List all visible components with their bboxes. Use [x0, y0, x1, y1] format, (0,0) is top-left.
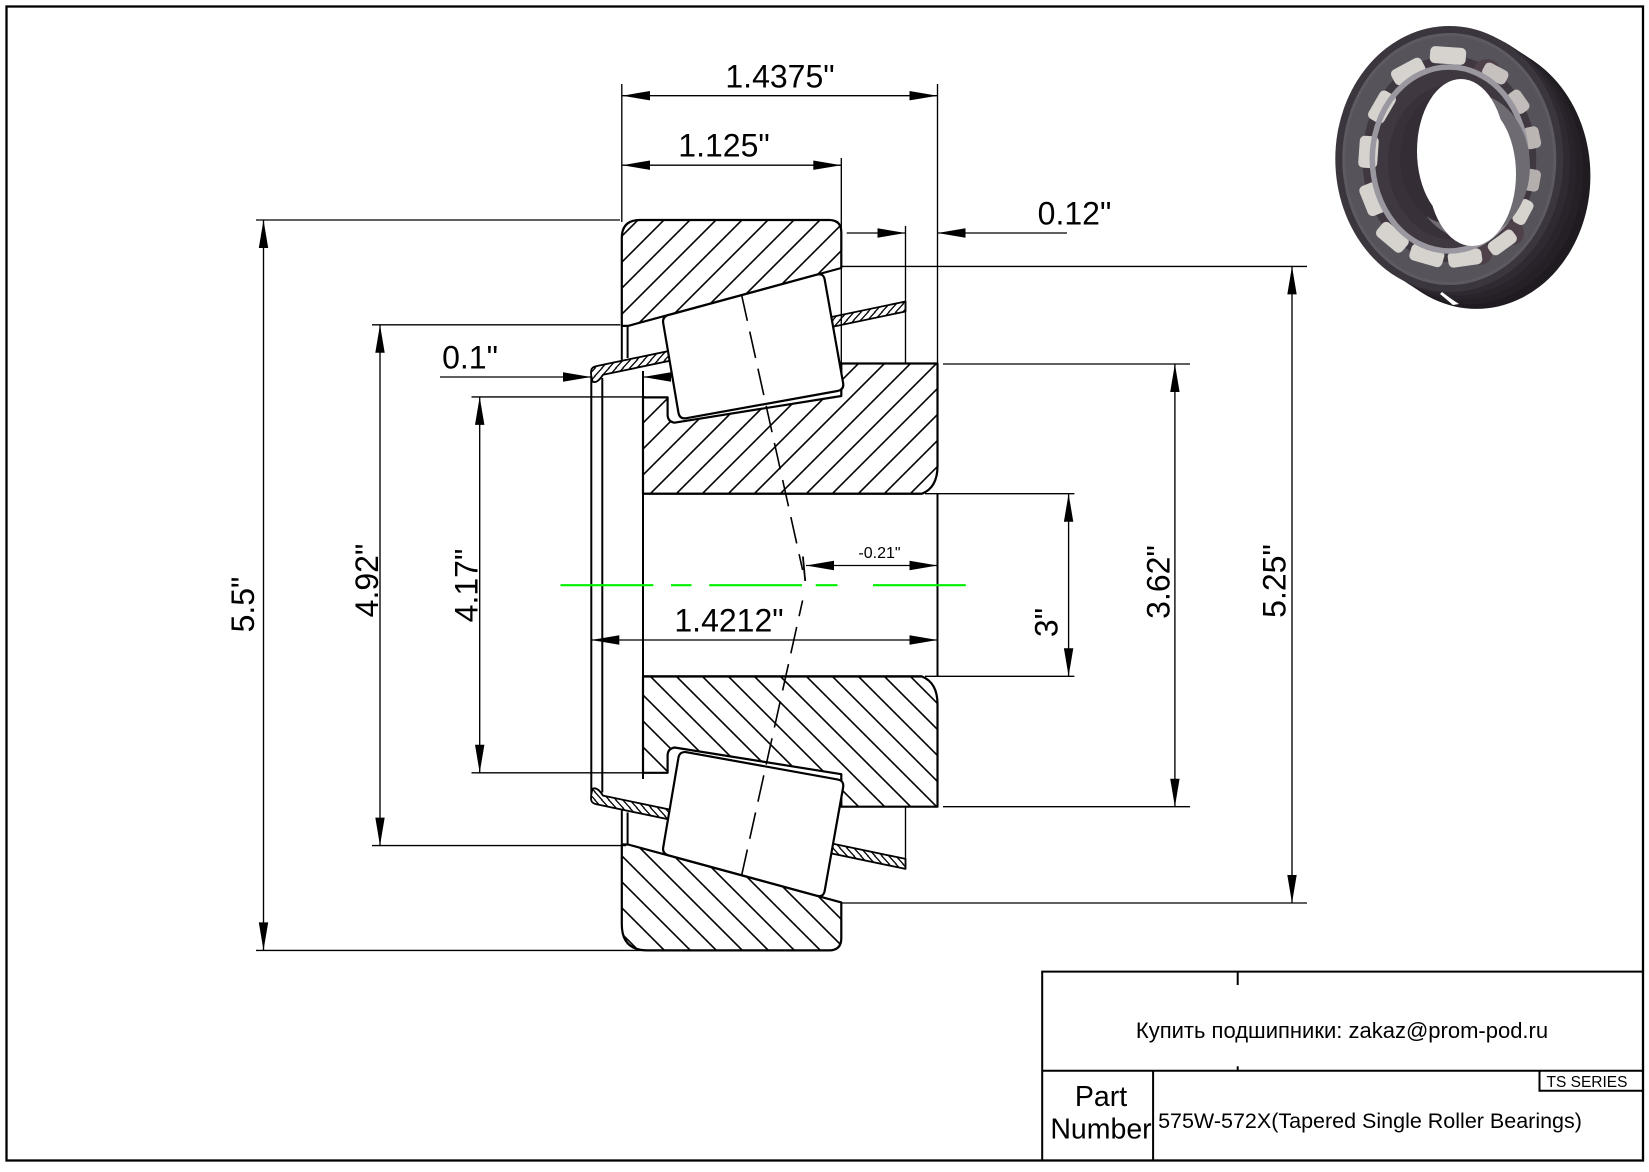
svg-text:Part: Part [1075, 1081, 1127, 1113]
svg-text:4.92": 4.92" [349, 544, 385, 618]
svg-text:1.4375": 1.4375" [725, 59, 834, 95]
svg-text:TS SERIES: TS SERIES [1547, 1074, 1628, 1091]
svg-text:5.25": 5.25" [1257, 544, 1293, 618]
svg-text:3.62": 3.62" [1141, 545, 1177, 619]
svg-text:Купить подшипники: zakaz@prom-: Купить подшипники: zakaz@prom-pod.ru [1136, 1018, 1548, 1043]
svg-text:1.125": 1.125" [678, 128, 769, 164]
svg-text:5.5": 5.5" [225, 577, 261, 633]
svg-text:-0.21": -0.21" [858, 545, 900, 562]
svg-text:575W-572X(Tapered Single Rolle: 575W-572X(Tapered Single Roller Bearings… [1158, 1109, 1582, 1133]
svg-text:1.4212": 1.4212" [674, 603, 783, 639]
svg-text:4.17": 4.17" [449, 549, 485, 623]
svg-text:0.12": 0.12" [1038, 196, 1112, 232]
svg-text:0.1": 0.1" [442, 340, 498, 376]
svg-text:3": 3" [1029, 608, 1065, 637]
svg-text:Number: Number [1050, 1114, 1152, 1146]
